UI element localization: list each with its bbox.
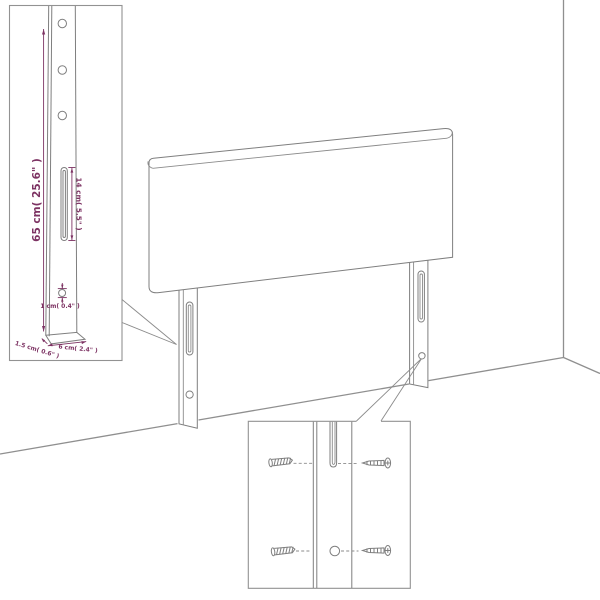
right-callout-pointer-lines — [357, 359, 422, 421]
pointer-line-lower — [122, 323, 177, 345]
alignment-dashes — [294, 463, 359, 551]
screw-head-cross — [385, 548, 390, 553]
leg-hole-1 — [58, 19, 66, 27]
edge-thickness-dimension-label: 1.5 cm( 0.6" ) — [14, 340, 60, 360]
hole-arrow-down — [61, 285, 63, 289]
pointer-line-right — [381, 359, 421, 421]
screw-head — [271, 548, 275, 556]
floor-line-mid-segment — [199, 384, 410, 420]
right-leg — [410, 260, 428, 388]
strip-hole — [330, 546, 340, 556]
slot-arrow-up — [71, 168, 74, 173]
callout-screw-detail — [248, 421, 410, 588]
leg-right-line — [75, 6, 77, 332]
callout-leg-dimensions: 65 cm( 25.6" ) 14 cm( 5.5" ) 1 cm( 0.4" … — [10, 6, 123, 361]
headboard-assembly-diagram: 65 cm( 25.6" ) 14 cm( 5.5" ) 1 cm( 0.4" … — [0, 0, 600, 600]
width-arrow-right — [81, 341, 86, 344]
pointer-line-upper — [122, 300, 177, 345]
pointer-line-left — [357, 359, 422, 421]
leg-keyhole-slot-inner — [63, 171, 65, 238]
screw-icon-top — [363, 458, 391, 468]
width-arrow-left — [48, 343, 53, 346]
hole-arrow-up — [61, 298, 63, 302]
screw-head-cross — [385, 461, 390, 466]
screw-head — [268, 459, 272, 467]
screw-icon-bottom — [363, 546, 391, 556]
left-callout-pointer-lines — [122, 300, 177, 345]
floor-line-left-segment — [0, 424, 178, 454]
callout-leg-drawing — [46, 6, 85, 344]
strip-keyhole-slot-inner — [332, 422, 335, 465]
headboard-panel — [148, 128, 453, 292]
coarse-thread-screw-icon-bottom — [271, 545, 295, 556]
slot-arrow-down — [71, 235, 74, 240]
leg-bottom-hole — [59, 290, 66, 297]
height-arrow-down — [42, 326, 45, 332]
coarse-thread-screw-icon-top — [268, 456, 292, 467]
strip-keyhole-slot — [330, 422, 337, 467]
leg-hole-2 — [58, 66, 66, 74]
leg-left-outer-line — [46, 6, 49, 335]
leg-hole-3 — [58, 111, 66, 119]
leg-strip-section — [313, 422, 352, 588]
height-dimension-label: 65 cm( 25.6" ) — [31, 158, 43, 242]
slot-height-dimension-label: 14 cm( 5.5" ) — [74, 177, 83, 230]
leg-width-dimension-label: 6 cm( 2.4" ) — [58, 343, 98, 354]
height-arrow-up — [42, 29, 45, 35]
leg-left-inner-line — [49, 6, 52, 336]
leg-keyhole-slot — [61, 168, 67, 241]
floor-line-right-segment — [429, 358, 564, 381]
floor-line-sidewall — [564, 358, 600, 374]
diagram-canvas: 65 cm( 25.6" ) 14 cm( 5.5" ) 1 cm( 0.4" … — [0, 0, 600, 600]
bottom-hole-dimension-label: 1 cm( 0.4" ) — [40, 303, 80, 310]
callout-box-border-with-gap — [248, 421, 410, 588]
